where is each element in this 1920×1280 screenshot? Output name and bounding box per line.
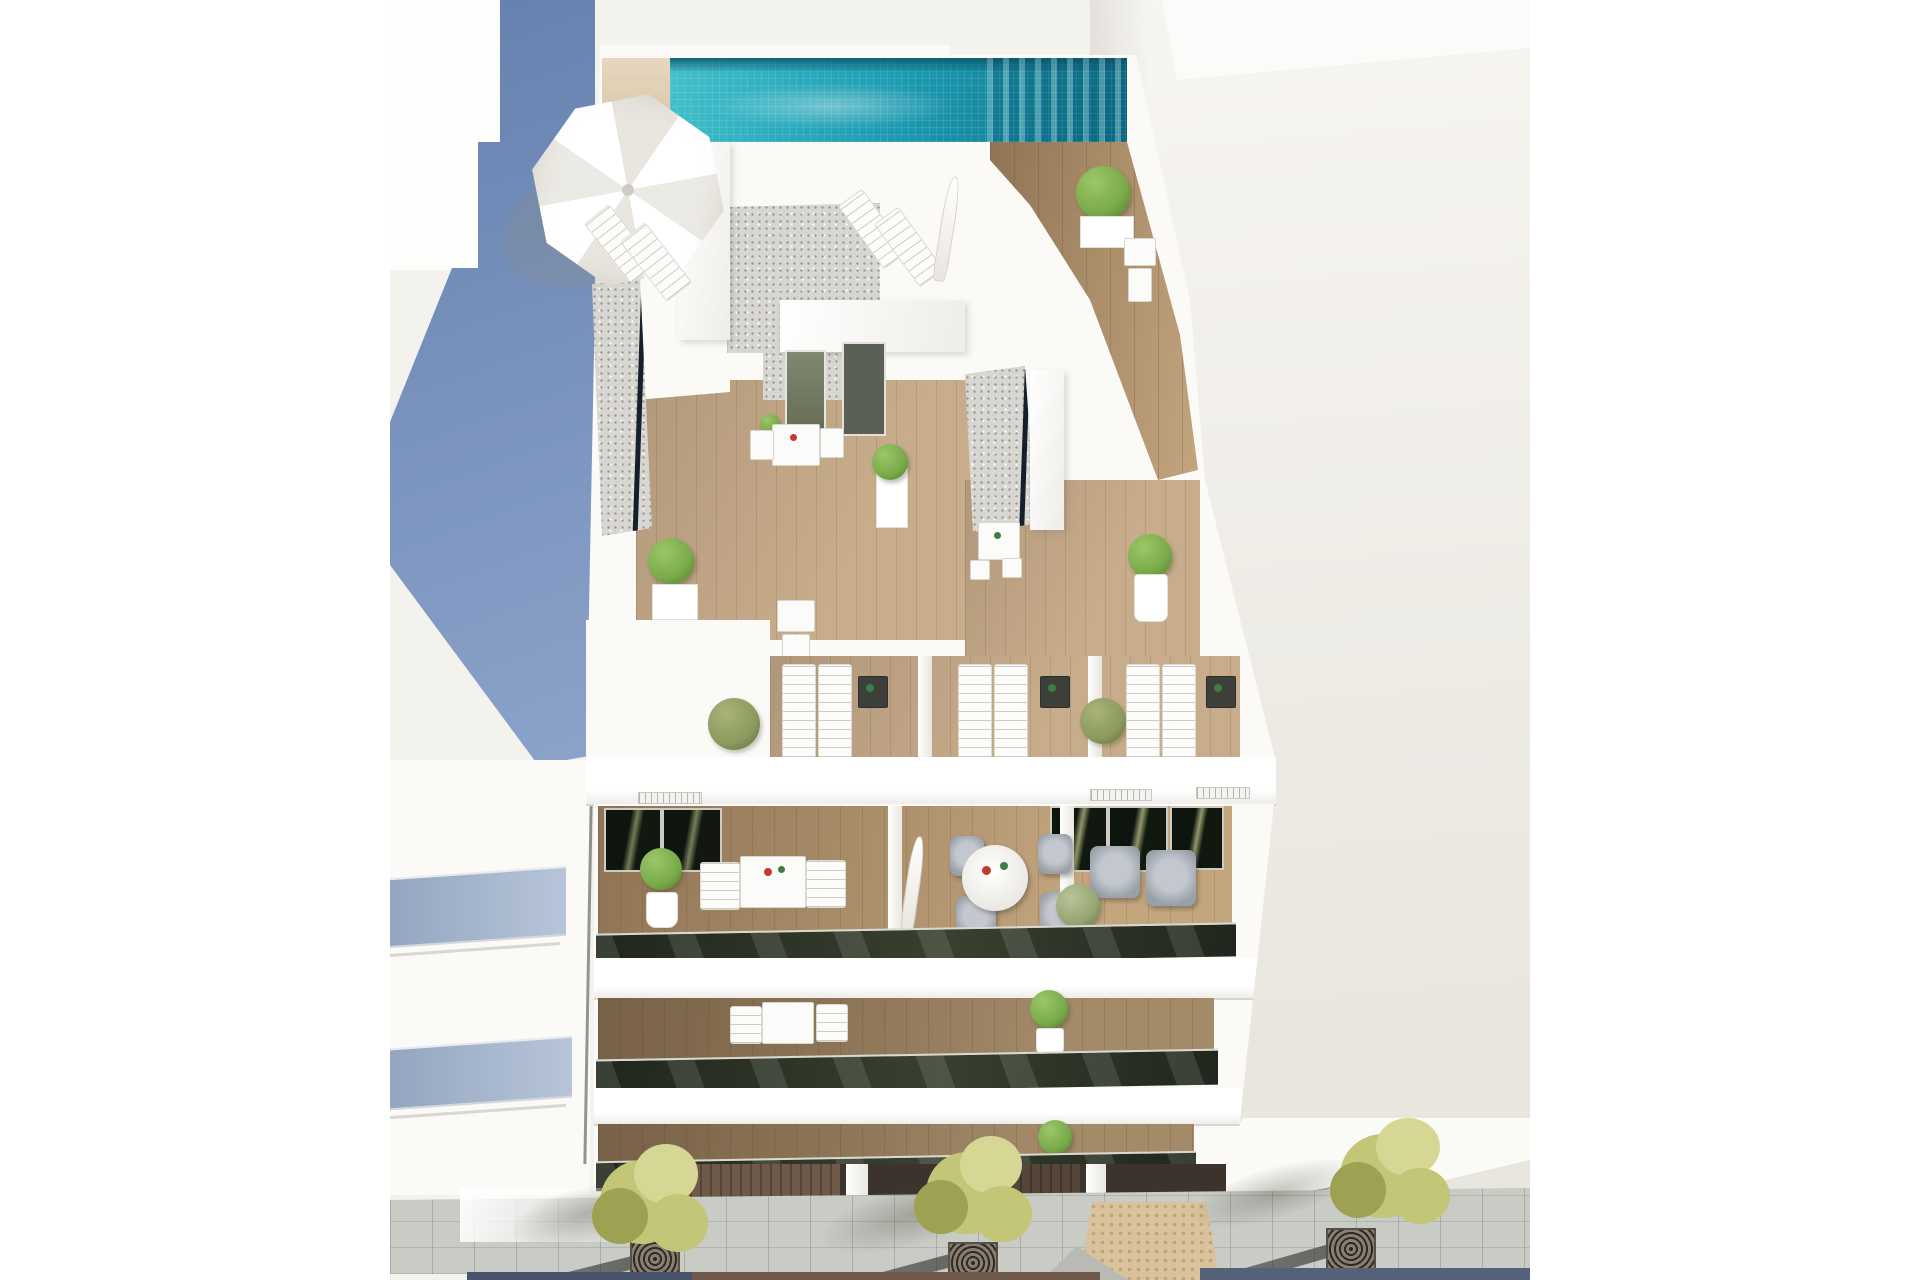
- table-item: [764, 868, 772, 876]
- plant-pot: [1134, 574, 1168, 622]
- road-edge: [1200, 1268, 1530, 1280]
- side-table: [1206, 676, 1236, 708]
- table-item: [994, 532, 1001, 539]
- stool: [1002, 558, 1022, 578]
- balcony-plant: [1038, 1120, 1072, 1154]
- side-table-plant: [866, 684, 874, 692]
- bistro-table: [978, 522, 1020, 560]
- chair: [730, 1006, 762, 1044]
- balcony-table: [762, 1002, 814, 1044]
- vent-grille: [1090, 789, 1152, 801]
- round-table: [962, 845, 1028, 911]
- street-tree: [914, 1136, 1036, 1248]
- sun-lounger: [1126, 664, 1160, 758]
- pool-caustics: [707, 83, 958, 129]
- side-table-plant: [1048, 684, 1056, 692]
- side-table: [858, 676, 888, 708]
- side-table-plant: [1214, 684, 1222, 692]
- chair: [816, 1004, 848, 1042]
- lounge-armchair: [1146, 850, 1196, 906]
- table-item: [790, 434, 797, 441]
- chair: [806, 860, 846, 908]
- balcony-plant: [1030, 990, 1068, 1028]
- roof-doorway: [842, 342, 886, 436]
- chair: [700, 862, 740, 910]
- sun-lounger: [958, 664, 992, 758]
- rooftop-pool: [670, 58, 1127, 142]
- balcony-slab: [594, 958, 1262, 1000]
- terrace-plant: [648, 538, 694, 584]
- high-chair-legs: [1128, 268, 1152, 302]
- vent-grille: [1196, 787, 1250, 799]
- tree-grate: [1326, 1228, 1376, 1270]
- balcony-plant: [640, 848, 682, 890]
- plant-pot: [646, 892, 678, 928]
- bistro-table: [772, 424, 820, 466]
- potted-plant: [1076, 166, 1130, 220]
- potted-plant: [1128, 534, 1172, 578]
- balcony-table: [740, 856, 806, 908]
- render-image: [390, 0, 1530, 1280]
- terrace-tree: [708, 698, 760, 750]
- pool-reflection: [987, 58, 1127, 142]
- neighbour-balconies: [390, 760, 590, 1195]
- road-edge: [692, 1272, 1100, 1280]
- terrace-divider: [918, 656, 932, 762]
- side-table: [1040, 676, 1070, 708]
- sun-lounger: [1162, 664, 1196, 758]
- table-item: [982, 866, 991, 875]
- roof-wall: [1030, 370, 1064, 530]
- street-tree: [1330, 1118, 1454, 1230]
- dining-chair: [1038, 834, 1072, 874]
- table-item: [1000, 862, 1008, 870]
- terrace-tree: [1080, 698, 1126, 744]
- sun-lounger: [818, 664, 852, 758]
- sun-lounger: [994, 664, 1028, 758]
- balcony-glass: [390, 866, 566, 948]
- street-tree: [590, 1142, 714, 1260]
- road-edge: [467, 1272, 692, 1280]
- balcony-plant: [1056, 884, 1100, 928]
- stool: [970, 560, 990, 580]
- chair: [820, 428, 844, 458]
- planter-box: [652, 584, 698, 620]
- lounge-armchair: [1090, 846, 1140, 898]
- balcony-glass: [390, 1036, 572, 1111]
- chair: [750, 430, 774, 460]
- high-chair: [1124, 238, 1156, 266]
- table-item: [778, 866, 785, 873]
- bistro-table: [777, 600, 815, 632]
- sun-lounger: [782, 664, 816, 758]
- vent-grille: [638, 792, 702, 804]
- terrace-plant: [872, 444, 908, 480]
- balcony-slab: [594, 1088, 1242, 1126]
